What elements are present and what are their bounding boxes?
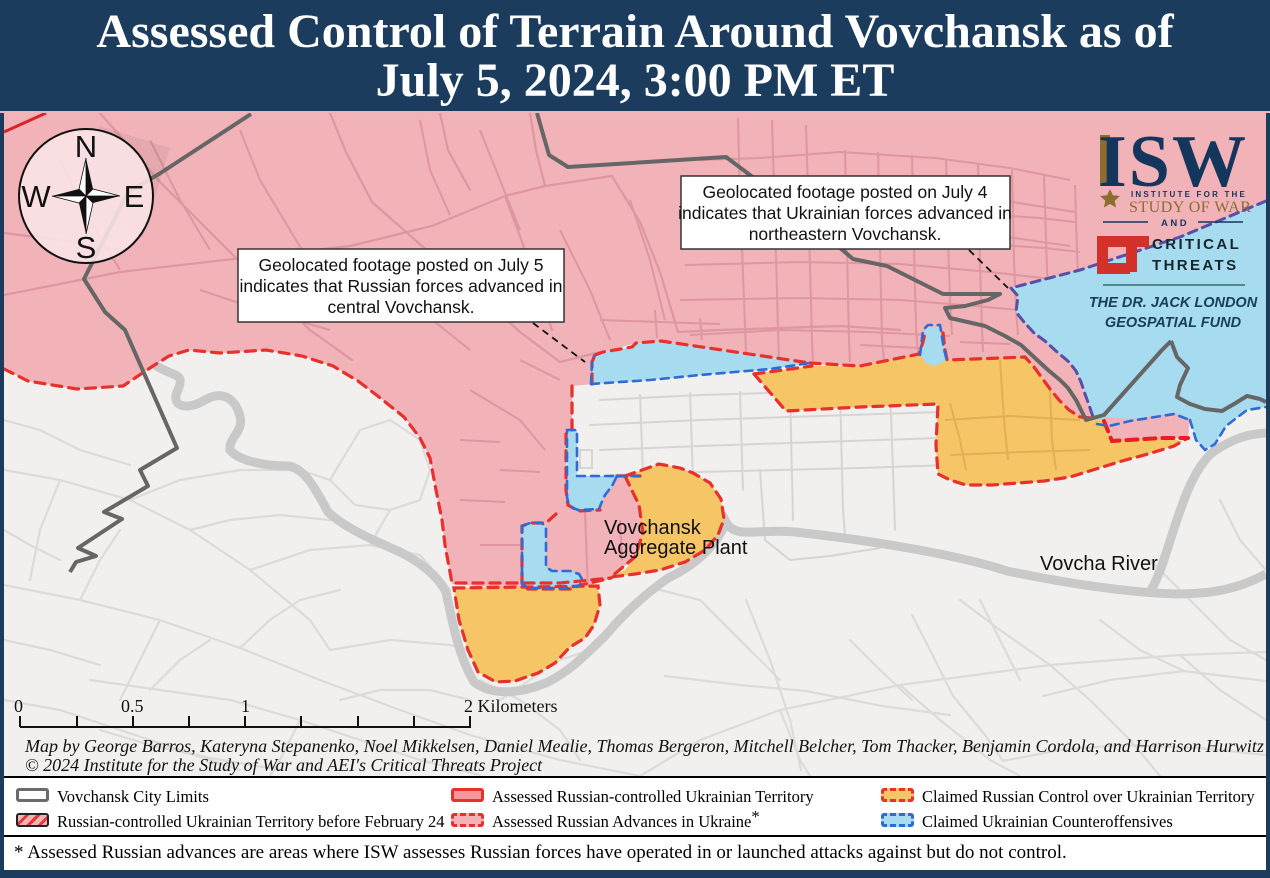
svg-text:Aggregate Plant: Aggregate Plant [604,537,748,559]
svg-text:INSTITUTE FOR THE: INSTITUTE FOR THE [1131,190,1247,199]
svg-text:S: S [76,230,97,265]
svg-text:© 2024 Institute for the Study: © 2024 Institute for the Study of War an… [25,755,543,775]
svg-text:N: N [75,129,97,164]
svg-text:THREATS: THREATS [1152,257,1239,274]
svg-text:0: 0 [14,696,23,716]
svg-text:Geolocated footage posted on J: Geolocated footage posted on July 4 [702,182,987,202]
svg-text:indicates that Russian forces: indicates that Russian forces advanced i… [240,276,563,296]
svg-text:Vovchansk: Vovchansk [604,517,702,539]
svg-text:Geolocated footage posted on J: Geolocated footage posted on July 5 [258,255,543,275]
svg-text:indicates that Ukrainian force: indicates that Ukrainian forces advanced… [678,203,1012,223]
svg-text:0.5: 0.5 [121,696,144,716]
svg-text:CRITICAL: CRITICAL [1152,236,1241,253]
svg-text:Vovcha River: Vovcha River [1040,553,1158,575]
svg-text:W: W [21,179,51,214]
svg-text:STUDY OF WAR: STUDY OF WAR [1129,199,1251,216]
svg-text:1: 1 [241,696,250,716]
svg-text:northeastern Vovchansk.: northeastern Vovchansk. [749,224,942,244]
svg-text:2 Kilometers: 2 Kilometers [464,696,557,716]
svg-text:THE DR. JACK LONDON: THE DR. JACK LONDON [1089,295,1258,311]
svg-text:central Vovchansk.: central Vovchansk. [328,297,475,317]
svg-text:GEOSPATIAL FUND: GEOSPATIAL FUND [1105,315,1242,331]
svg-text:AND: AND [1161,218,1189,229]
svg-text:Map by George Barros, Kateryna: Map by George Barros, Kateryna Stepanenk… [24,736,1264,756]
svg-text:E: E [124,179,145,214]
